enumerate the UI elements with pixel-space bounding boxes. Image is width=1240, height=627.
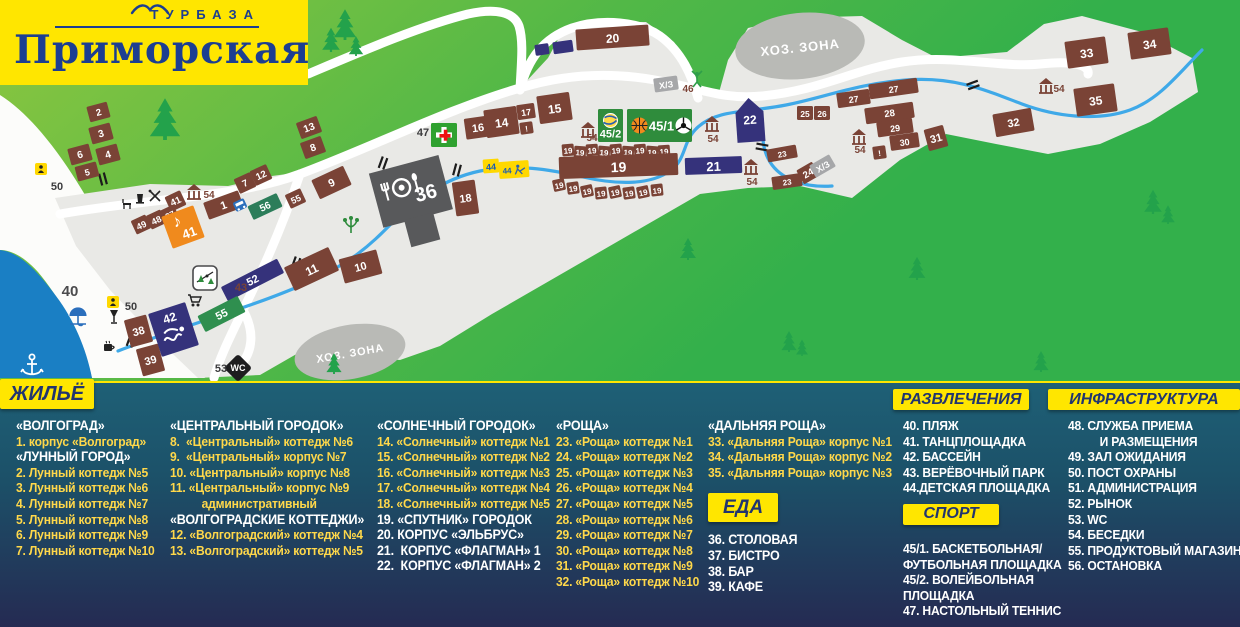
- map-label-54: 54: [1053, 84, 1065, 95]
- map-label-46: 46: [682, 84, 694, 95]
- legend-item: 41. ТАНЦПЛОЩАДКА: [903, 434, 1062, 450]
- legend-item: 38. БАР: [708, 564, 892, 580]
- svg-text:20: 20: [605, 31, 620, 46]
- legend-item: 19. «СПУТНИК» ГОРОДОК: [377, 512, 550, 528]
- svg-text:18: 18: [459, 192, 473, 206]
- legend-item: 37. БИСТРО: [708, 548, 892, 564]
- legend-item: 6. Лунный коттедж №9: [16, 527, 155, 543]
- map-building-!: !: [519, 121, 534, 135]
- svg-text:15: 15: [547, 101, 562, 117]
- legend-item: ФУТБОЛЬНАЯ ПЛОЩАДКА: [903, 557, 1062, 573]
- legend-column: «РОЩА»23. «Роща» коттедж №124. «Роща» ко…: [556, 418, 710, 590]
- svg-text:23: 23: [782, 177, 793, 187]
- map-building-18: 18: [452, 180, 480, 217]
- legend-item: 13. «Волгоградский» коттедж №5: [170, 543, 364, 559]
- legend-item: 22. КОРПУС «ФЛАГМАН» 2: [377, 558, 550, 574]
- brand-top: ТУРБАЗА: [55, 7, 260, 22]
- legend-column: 48. СЛУЖБА ПРИЕМАИ РАЗМЕЩЕНИЯ49. ЗАЛ ОЖИ…: [1068, 418, 1240, 574]
- legend-item: 28. «Роща» коттедж №6: [556, 512, 699, 528]
- map-label-54: 54: [586, 133, 598, 144]
- map-building-19: 19: [622, 186, 636, 200]
- svg-text:17: 17: [520, 107, 531, 118]
- legend-column: «ЦЕНТРАЛЬНЫЙ ГОРОДОК»8. «Центральный» ко…: [170, 418, 379, 558]
- legend-item: 23. «Роща» коттедж №1: [556, 434, 699, 450]
- legend-item: «ВОЛГОГРАД»: [16, 418, 155, 434]
- legend-item: 42. БАССЕЙН: [903, 449, 1062, 465]
- legend-item: 16. «Солнечный» коттедж №3: [377, 465, 550, 481]
- legend-item: 10. «Центральный» корпус №8: [170, 465, 364, 481]
- legend-item: 7. Лунный коттедж №10: [16, 543, 155, 559]
- map-label-53: 53: [215, 363, 227, 375]
- legend-column: «ВОЛГОГРАД»1. корпус «Волгоград»«ЛУННЫЙ …: [16, 418, 165, 558]
- legend-item: 54. БЕСЕДКИ: [1068, 527, 1240, 543]
- svg-text:19: 19: [652, 186, 662, 196]
- svg-text:19: 19: [611, 146, 621, 156]
- legend-item: 12. «Волгоградский» коттедж №4: [170, 527, 364, 543]
- map-building-35: 35: [1073, 83, 1117, 116]
- logo: ТУРБАЗА Приморская: [0, 0, 308, 85]
- map-building-19: 19: [650, 183, 663, 196]
- legend-item: «ДАЛЬНЯЯ РОЩА»: [708, 418, 892, 434]
- map-label-50: 50: [125, 301, 137, 313]
- legend-item: 45/1. БАСКЕТБОЛЬНАЯ/: [903, 541, 1062, 557]
- map-building-block: [431, 123, 457, 147]
- svg-text:22: 22: [743, 113, 758, 128]
- map-building-14: 14: [483, 106, 520, 138]
- svg-text:45/2: 45/2: [600, 129, 621, 141]
- legend-item: 17. «Солнечный» коттедж №4: [377, 480, 550, 496]
- legend-item: 20. КОРПУС «ЭЛЬБРУС»: [377, 527, 550, 543]
- svg-text:Х/З: Х/З: [658, 79, 674, 91]
- legend-item: 55. ПРОДУКТОВЫЙ МАГАЗИН: [1068, 543, 1240, 559]
- svg-text:29: 29: [889, 123, 900, 134]
- legend-item: «ЦЕНТРАЛЬНЫЙ ГОРОДОК»: [170, 418, 364, 434]
- legend-section-badge: СПОРТ: [903, 504, 999, 525]
- legend-item: 49. ЗАЛ ОЖИДАНИЯ: [1068, 449, 1240, 465]
- svg-text:45/1: 45/1: [649, 119, 674, 134]
- legend-item: 30. «Роща» коттедж №8: [556, 543, 699, 559]
- svg-text:44: 44: [486, 162, 497, 173]
- legend-item: 24. «Роща» коттедж №2: [556, 449, 699, 465]
- legend-item: 40. ПЛЯЖ: [903, 418, 1062, 434]
- map-building-19: 19: [580, 184, 594, 198]
- legend-item: 39. КАФЕ: [708, 579, 892, 595]
- legend-item: 53. WC: [1068, 512, 1240, 528]
- map-building-21: 21: [685, 156, 743, 175]
- map-building-26: 26: [814, 106, 830, 120]
- legend-item: «ЛУННЫЙ ГОРОД»: [16, 449, 155, 465]
- legend-section-badge: ЕДА: [708, 493, 778, 522]
- legend-item: 11. «Центральный» корпус №9: [170, 480, 364, 496]
- map-label-47: 47: [417, 127, 429, 139]
- legend-item: 32. «Роща» коттедж №10: [556, 574, 699, 590]
- svg-text:19: 19: [596, 189, 606, 199]
- legend-item: «РОЩА»: [556, 418, 699, 434]
- svg-text:19: 19: [563, 146, 573, 156]
- svg-text:16: 16: [471, 122, 485, 136]
- map-label-50: 50: [51, 181, 63, 193]
- map-building-!: !: [872, 145, 887, 160]
- map-building-19: 19: [566, 181, 580, 195]
- legend-item: «СОЛНЕЧНЫЙ ГОРОДОК»: [377, 418, 550, 434]
- svg-text:19: 19: [568, 184, 579, 194]
- legend-section-badge: ЖИЛЬЁ: [0, 379, 94, 409]
- legend-column: «СОЛНЕЧНЫЙ ГОРОДОК»14. «Солнечный» котте…: [377, 418, 563, 574]
- map-building-19: 19: [559, 153, 679, 179]
- resort-map-poster: ХОЗ. ЗОНАХОЗ. ЗОНА2364513812715695510111…: [0, 0, 1240, 627]
- legend-item: «ВОЛГОГРАДСКИЕ КОТТЕДЖИ»: [170, 512, 364, 528]
- svg-text:19: 19: [624, 189, 635, 199]
- svg-text:30: 30: [899, 137, 910, 148]
- map-building-15: 15: [536, 92, 573, 124]
- legend-item: И РАЗМЕЩЕНИЯ: [1068, 434, 1240, 450]
- svg-text:19: 19: [610, 159, 626, 176]
- map-building-19: 19: [636, 185, 650, 199]
- svg-text:35: 35: [1088, 93, 1103, 109]
- map-building-17: 17: [516, 103, 536, 120]
- map-building-19: 19: [586, 144, 599, 157]
- legend-column: 40. ПЛЯЖ41. ТАНЦПЛОЩАДКА42. БАССЕЙН43. В…: [903, 418, 1073, 619]
- legend-item: 56. ОСТАНОВКА: [1068, 558, 1240, 574]
- map-label-40: 40: [62, 283, 79, 300]
- map-building-45/2: 45/2: [598, 109, 623, 142]
- legend-column: «ДАЛЬНЯЯ РОЩА»33. «Дальняя Роща» корпус …: [708, 418, 906, 595]
- legend-item: 26. «Роща» коттедж №4: [556, 480, 699, 496]
- legend-item: 48. СЛУЖБА ПРИЕМА: [1068, 418, 1240, 434]
- legend-band: ЖИЛЬЁРАЗВЛЕЧЕНИЯИНФРАСТРУКТУРА«ВОЛГОГРАД…: [0, 381, 1240, 627]
- svg-text:WC: WC: [231, 363, 246, 373]
- map-building-25: 25: [797, 106, 813, 120]
- svg-text:14: 14: [494, 115, 509, 131]
- legend-item: 8. «Центральный» коттедж №6: [170, 434, 364, 450]
- map-building-19: 19: [608, 185, 622, 199]
- legend-item: 21. КОРПУС «ФЛАГМАН» 1: [377, 543, 550, 559]
- legend-item: 9. «Центральный» корпус №7: [170, 449, 364, 465]
- svg-text:33: 33: [1079, 46, 1094, 62]
- map-label-54: 54: [707, 134, 719, 145]
- legend-item: 45/2. ВОЛЕЙБОЛЬНАЯ: [903, 572, 1062, 588]
- legend-item: 35. «Дальняя Роща» корпус №3: [708, 465, 892, 481]
- legend-item: 52. РЫНОК: [1068, 496, 1240, 512]
- svg-text:32: 32: [1007, 117, 1021, 131]
- svg-text:21: 21: [706, 159, 721, 174]
- map-label-43: 43: [235, 282, 247, 294]
- svg-text:25: 25: [800, 109, 810, 119]
- svg-text:27: 27: [888, 84, 899, 95]
- legend-item: 5. Лунный коттедж №8: [16, 512, 155, 528]
- map-label-54: 54: [746, 177, 758, 188]
- legend-item: 15. «Солнечный» коттедж №2: [377, 449, 550, 465]
- map-label-54: 54: [203, 190, 215, 201]
- rope-park-icon: [193, 266, 217, 290]
- legend-item: 2. Лунный коттедж №5: [16, 465, 155, 481]
- legend-item: 51. АДМИНИСТРАЦИЯ: [1068, 480, 1240, 496]
- legend-item: 27. «Роща» коттедж №5: [556, 496, 699, 512]
- map-building-45/1: 45/1: [627, 109, 692, 142]
- map-building-44: 44: [483, 158, 500, 173]
- legend-item: 18. «Солнечный» коттедж №5: [377, 496, 550, 512]
- legend-item: 1. корпус «Волгоград»: [16, 434, 155, 450]
- legend-item: 4. Лунный коттедж №7: [16, 496, 155, 512]
- map-building-19: 19: [552, 178, 566, 192]
- map-label-54: 54: [854, 145, 866, 156]
- legend-section-badge: РАЗВЛЕЧЕНИЯ: [893, 389, 1029, 410]
- svg-text:26: 26: [817, 109, 827, 119]
- map-building-block: [534, 43, 549, 56]
- legend-item: 36. СТОЛОВАЯ: [708, 532, 892, 548]
- legend-item: 43. ВЕРЁВОЧНЫЙ ПАРК: [903, 465, 1062, 481]
- svg-text:27: 27: [848, 94, 859, 105]
- legend-item: 44.ДЕТСКАЯ ПЛОЩАДКА: [903, 480, 1062, 496]
- svg-text:44: 44: [502, 166, 512, 176]
- svg-text:34: 34: [1142, 37, 1157, 53]
- map-building-19: 19: [594, 186, 607, 199]
- legend-section-badge: ИНФРАСТРУКТУРА: [1048, 389, 1240, 410]
- legend-item: 47. НАСТОЛЬНЫЙ ТЕННИС: [903, 603, 1062, 619]
- svg-text:19: 19: [587, 146, 597, 156]
- legend-item: 34. «Дальняя Роща» корпус №2: [708, 449, 892, 465]
- legend-item: 29. «Роща» коттедж №7: [556, 527, 699, 543]
- legend-item: 3. Лунный коттедж №6: [16, 480, 155, 496]
- guard-post-icon: [107, 296, 119, 308]
- legend-item: административный: [170, 496, 364, 512]
- map-building-19: 19: [609, 143, 622, 156]
- legend-item: 50. ПОСТ ОХРАНЫ: [1068, 465, 1240, 481]
- legend-item: 14. «Солнечный» коттедж №1: [377, 434, 550, 450]
- legend-item: 31. «Роща» коттедж №9: [556, 558, 699, 574]
- legend-item: 25. «Роща» коттедж №3: [556, 465, 699, 481]
- map-building-34: 34: [1127, 27, 1171, 59]
- map-building-33: 33: [1064, 36, 1108, 68]
- map-building-44: 44: [498, 160, 529, 179]
- brand-title: Приморская: [14, 27, 294, 73]
- legend-item: ПЛОЩАДКА: [903, 588, 1062, 604]
- map-building-19: 19: [561, 143, 574, 156]
- legend-item: 33. «Дальняя Роща» корпус №1: [708, 434, 892, 450]
- guard-post-icon: [35, 163, 47, 175]
